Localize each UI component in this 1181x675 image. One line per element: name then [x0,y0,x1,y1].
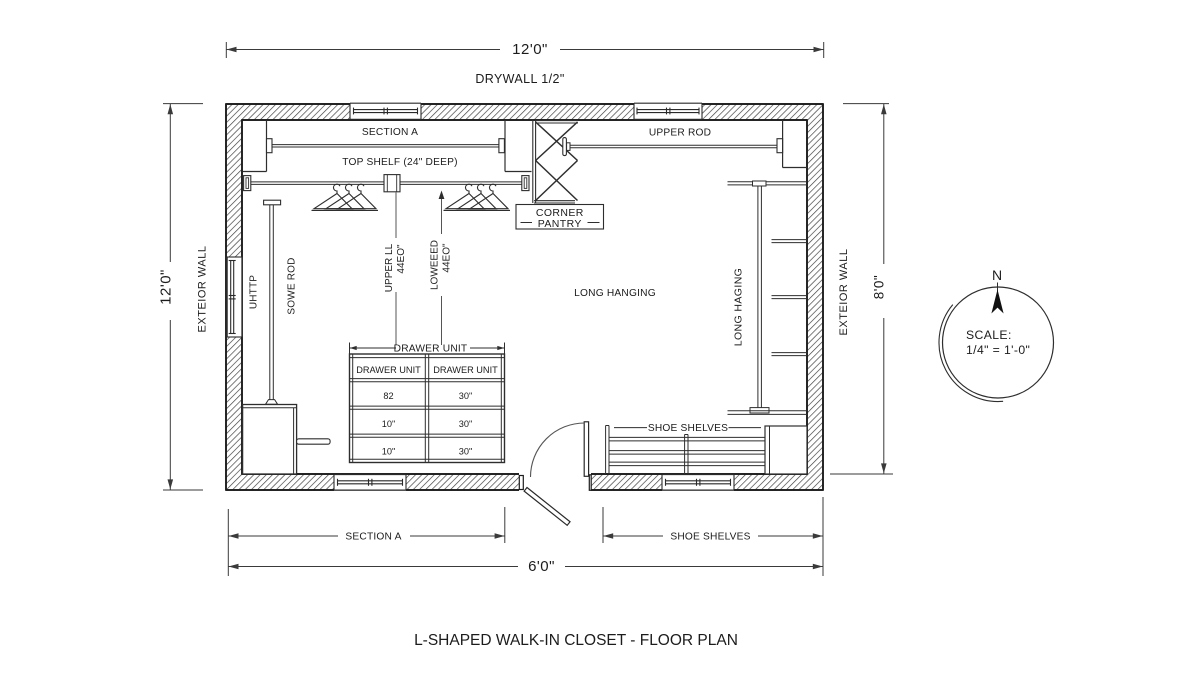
svg-text:DRYWALL 1/2": DRYWALL 1/2" [475,72,564,86]
svg-text:1/4" = 1'-0": 1/4" = 1'-0" [966,343,1030,357]
svg-text:SECTION A: SECTION A [362,127,418,138]
svg-text:DRAWER UNIT: DRAWER UNIT [356,365,421,375]
svg-text:DRAWER UNIT: DRAWER UNIT [433,365,498,375]
svg-text:EXTEIOR WALL: EXTEIOR WALL [197,246,209,333]
svg-text:LONG HAGING: LONG HAGING [733,268,745,347]
svg-text:12'0": 12'0" [512,41,548,58]
svg-text:TOP SHELF (24" DEEP): TOP SHELF (24" DEEP) [342,157,457,168]
svg-text:10": 10" [382,447,395,457]
svg-text:30": 30" [459,391,472,401]
svg-text:PANTRY: PANTRY [538,218,582,230]
svg-text:10": 10" [382,419,395,429]
svg-text:SHOE SHELVES: SHOE SHELVES [670,532,750,543]
svg-text:44EO": 44EO" [396,244,407,274]
svg-text:6'0": 6'0" [528,558,555,575]
svg-text:LOWEEED: LOWEEED [430,240,441,290]
svg-text:30": 30" [459,447,472,457]
svg-text:UPPER ROD: UPPER ROD [649,128,711,139]
svg-text:8'0": 8'0" [872,275,887,299]
svg-text:EXTEIOR WALL: EXTEIOR WALL [838,249,850,336]
svg-text:N: N [992,267,1002,283]
svg-text:UHTTP: UHTTP [249,275,260,309]
svg-text:SOWE ROD: SOWE ROD [287,257,298,314]
svg-text:SECTION A: SECTION A [345,532,401,543]
svg-text:30": 30" [459,419,472,429]
svg-text:DRAWER UNIT: DRAWER UNIT [394,344,468,355]
svg-text:L-SHAPED WALK-IN CLOSET - FLOO: L-SHAPED WALK-IN CLOSET - FLOOR PLAN [414,632,738,649]
svg-text:SCALE:: SCALE: [966,328,1012,342]
svg-text:LONG HANGING: LONG HANGING [574,288,656,299]
svg-text:82: 82 [383,391,393,401]
svg-text:12'0": 12'0" [158,269,175,305]
svg-text:SHOE SHELVES: SHOE SHELVES [648,423,728,434]
svg-text:44EO": 44EO" [442,243,453,273]
svg-text:UPPER LL: UPPER LL [384,243,395,292]
